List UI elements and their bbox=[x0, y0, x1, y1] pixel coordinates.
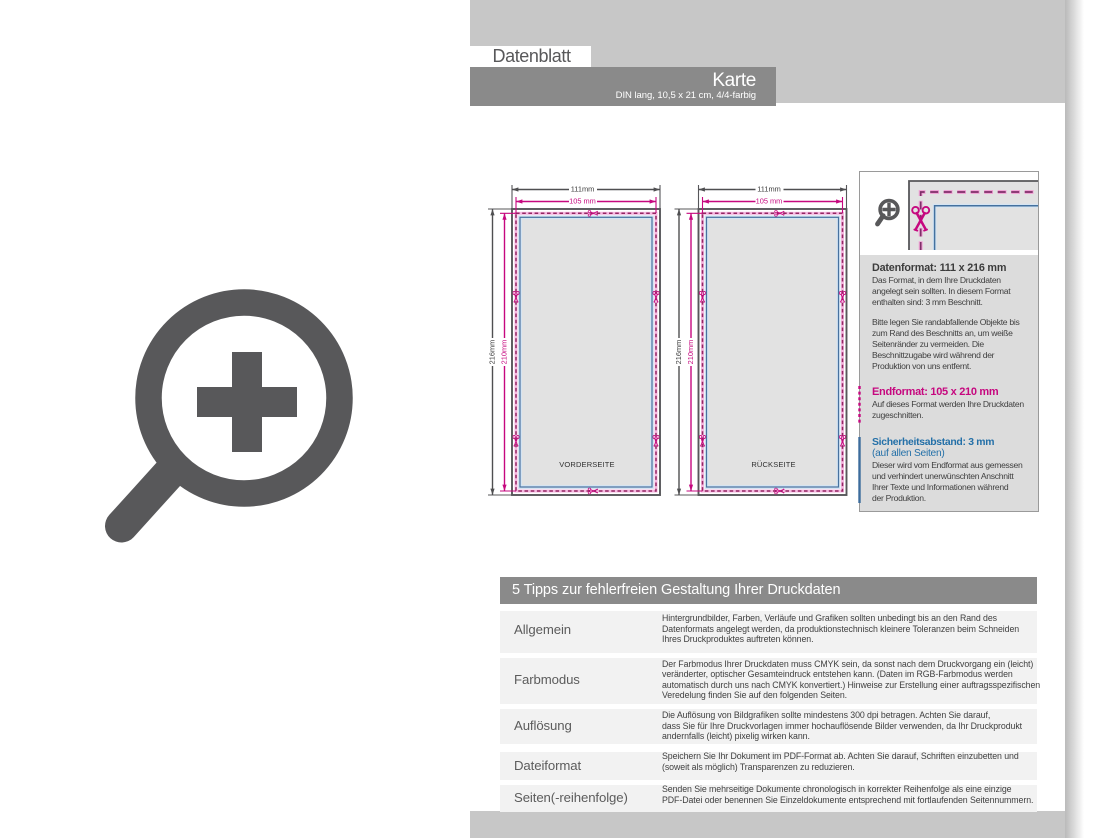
svg-text:VORDERSEITE: VORDERSEITE bbox=[559, 460, 614, 469]
svg-text:RÜCKSEITE: RÜCKSEITE bbox=[751, 460, 795, 469]
